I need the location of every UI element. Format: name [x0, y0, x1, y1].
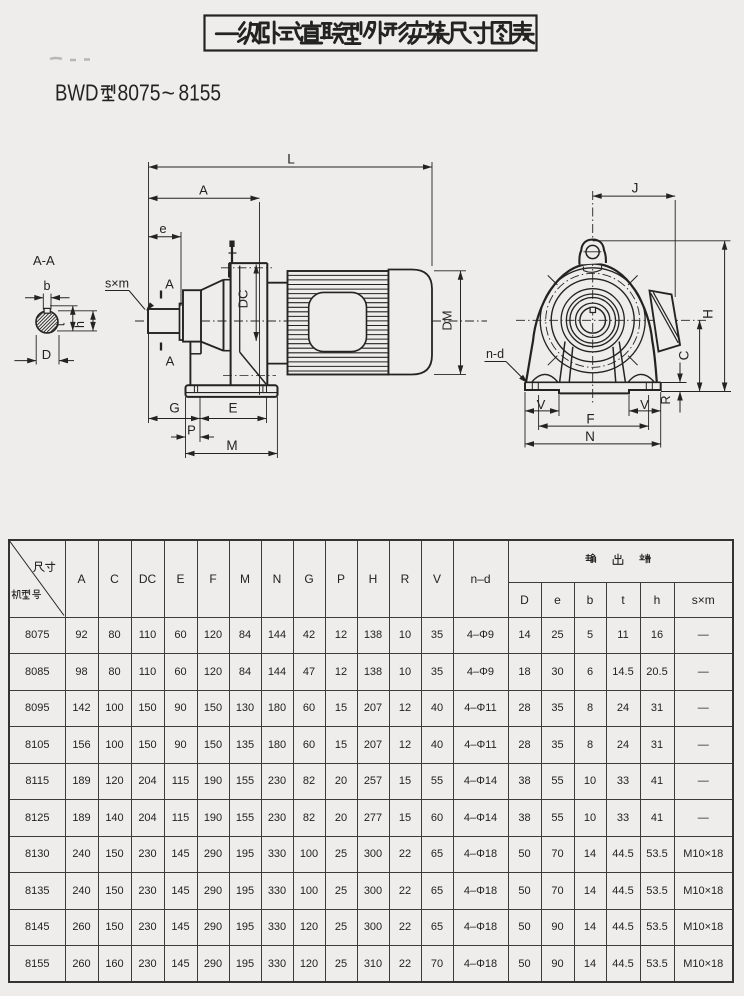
svg-text:s×m: s×m: [105, 277, 129, 291]
svg-text:~: ~: [162, 80, 175, 106]
svg-text:C: C: [677, 350, 692, 360]
svg-text:t: t: [54, 322, 68, 326]
svg-text:A: A: [166, 354, 175, 369]
svg-text:BWD: BWD: [55, 80, 99, 106]
svg-text:J: J: [632, 181, 639, 196]
svg-text:A: A: [165, 277, 174, 292]
svg-text:E: E: [228, 401, 237, 416]
svg-text:A-A: A-A: [33, 253, 55, 268]
svg-text:H: H: [701, 309, 716, 319]
svg-text:e: e: [159, 221, 166, 236]
svg-text:A: A: [199, 183, 208, 198]
svg-text:R: R: [659, 395, 673, 404]
svg-text:h: h: [73, 321, 87, 328]
svg-text:b: b: [44, 279, 51, 293]
svg-text:DC: DC: [236, 290, 251, 309]
svg-text:G: G: [169, 401, 180, 416]
svg-text:DM: DM: [440, 310, 455, 330]
svg-text:8075: 8075: [118, 80, 161, 106]
svg-text:F: F: [586, 412, 594, 427]
svg-text:8155: 8155: [179, 80, 222, 106]
svg-text:V: V: [640, 397, 649, 412]
svg-text:M: M: [226, 438, 237, 453]
svg-text:D: D: [42, 347, 51, 362]
svg-text:L: L: [287, 152, 295, 167]
svg-text:V: V: [537, 397, 546, 412]
svg-text:n-d: n-d: [486, 347, 504, 361]
svg-text:N: N: [585, 429, 595, 444]
svg-text:P: P: [187, 423, 196, 438]
